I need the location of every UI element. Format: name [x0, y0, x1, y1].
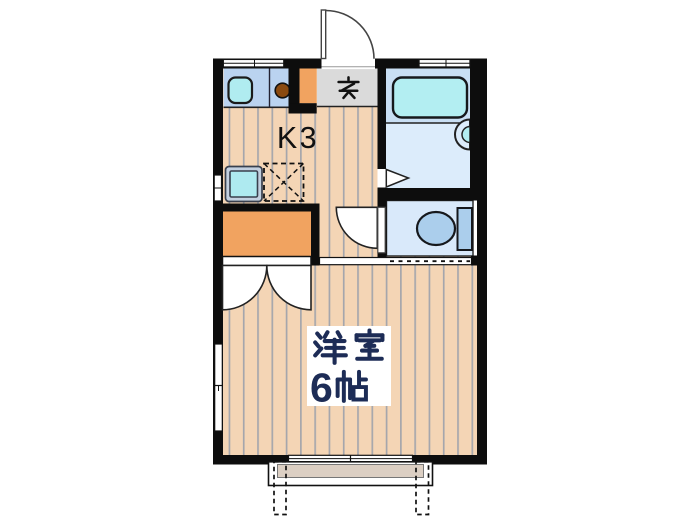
svg-text:6: 6 — [310, 365, 333, 411]
svg-text:K3: K3 — [277, 121, 319, 155]
